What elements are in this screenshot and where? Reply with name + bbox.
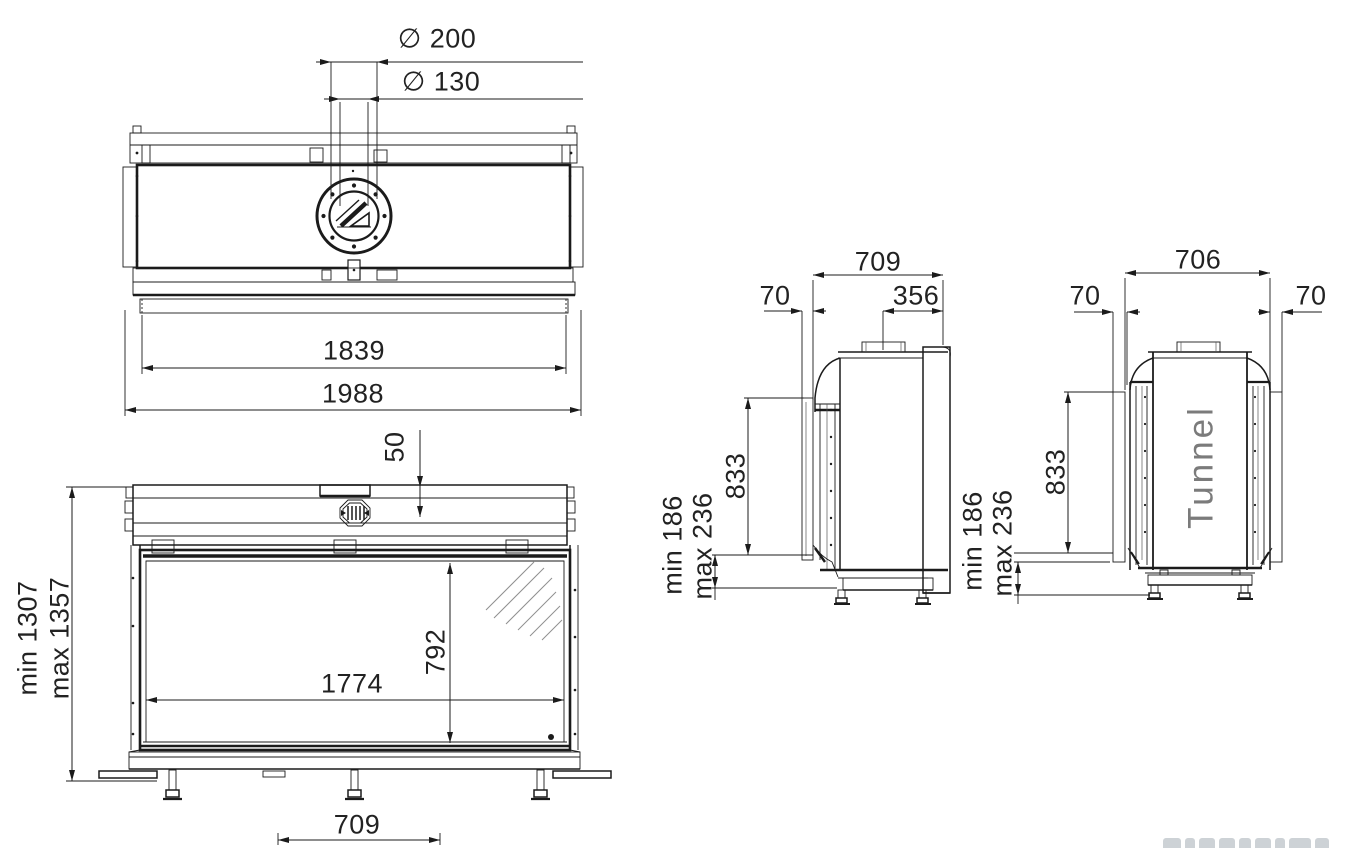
dim-height-min: min 1307 <box>15 580 42 695</box>
tunnel-model-label: Tunnel <box>1184 405 1219 529</box>
dim-inner-width: 1839 <box>323 338 385 365</box>
fireplace-technical-drawing: ∅ 200 ∅ 130 1839 1988 50 min 1307 max 13… <box>0 0 1356 848</box>
dim-side-flue-to-back: 356 <box>893 283 940 310</box>
dim-flue-outer: ∅ 200 <box>398 26 477 53</box>
dim-tunnel-base-max: max 236 <box>990 489 1017 596</box>
flue-collar-icon <box>317 179 391 253</box>
brand-logo-icon <box>340 500 370 526</box>
dim-tunnel-offset-left: 70 <box>1069 283 1100 310</box>
glass-reflection <box>486 562 562 640</box>
dim-side-glass-offset: 70 <box>759 283 790 310</box>
front-feet <box>163 770 550 799</box>
dim-height-max: max 1357 <box>47 577 74 700</box>
watermark <box>1163 838 1356 848</box>
dim-tunnel-depth: 706 <box>1175 247 1222 274</box>
dim-tunnel-offset-right: 70 <box>1295 283 1326 310</box>
dim-tunnel-base-min: min 186 <box>960 491 987 591</box>
dim-glass-width: 1774 <box>321 671 383 698</box>
dim-glass-height: 792 <box>423 629 450 676</box>
front-view-drawing <box>66 430 611 845</box>
tunnel-view-drawing <box>1014 273 1322 604</box>
tunnel-feet <box>1147 585 1253 599</box>
top-view-drawing <box>123 62 583 313</box>
dim-base-center: 709 <box>334 812 381 839</box>
dim-overall-width: 1988 <box>322 381 384 408</box>
dim-side-depth: 709 <box>855 249 902 276</box>
drawing-canvas <box>0 0 1356 848</box>
dim-side-base-max: max 236 <box>690 492 717 599</box>
dim-side-glass-height: 833 <box>723 453 750 500</box>
dim-flue-inner: ∅ 130 <box>402 69 481 96</box>
side-feet <box>834 590 931 604</box>
side-view-drawing <box>712 275 950 604</box>
dim-top-section: 50 <box>382 431 409 462</box>
dim-tunnel-glass-height: 833 <box>1043 449 1070 496</box>
dim-side-base-min: min 186 <box>660 495 687 595</box>
